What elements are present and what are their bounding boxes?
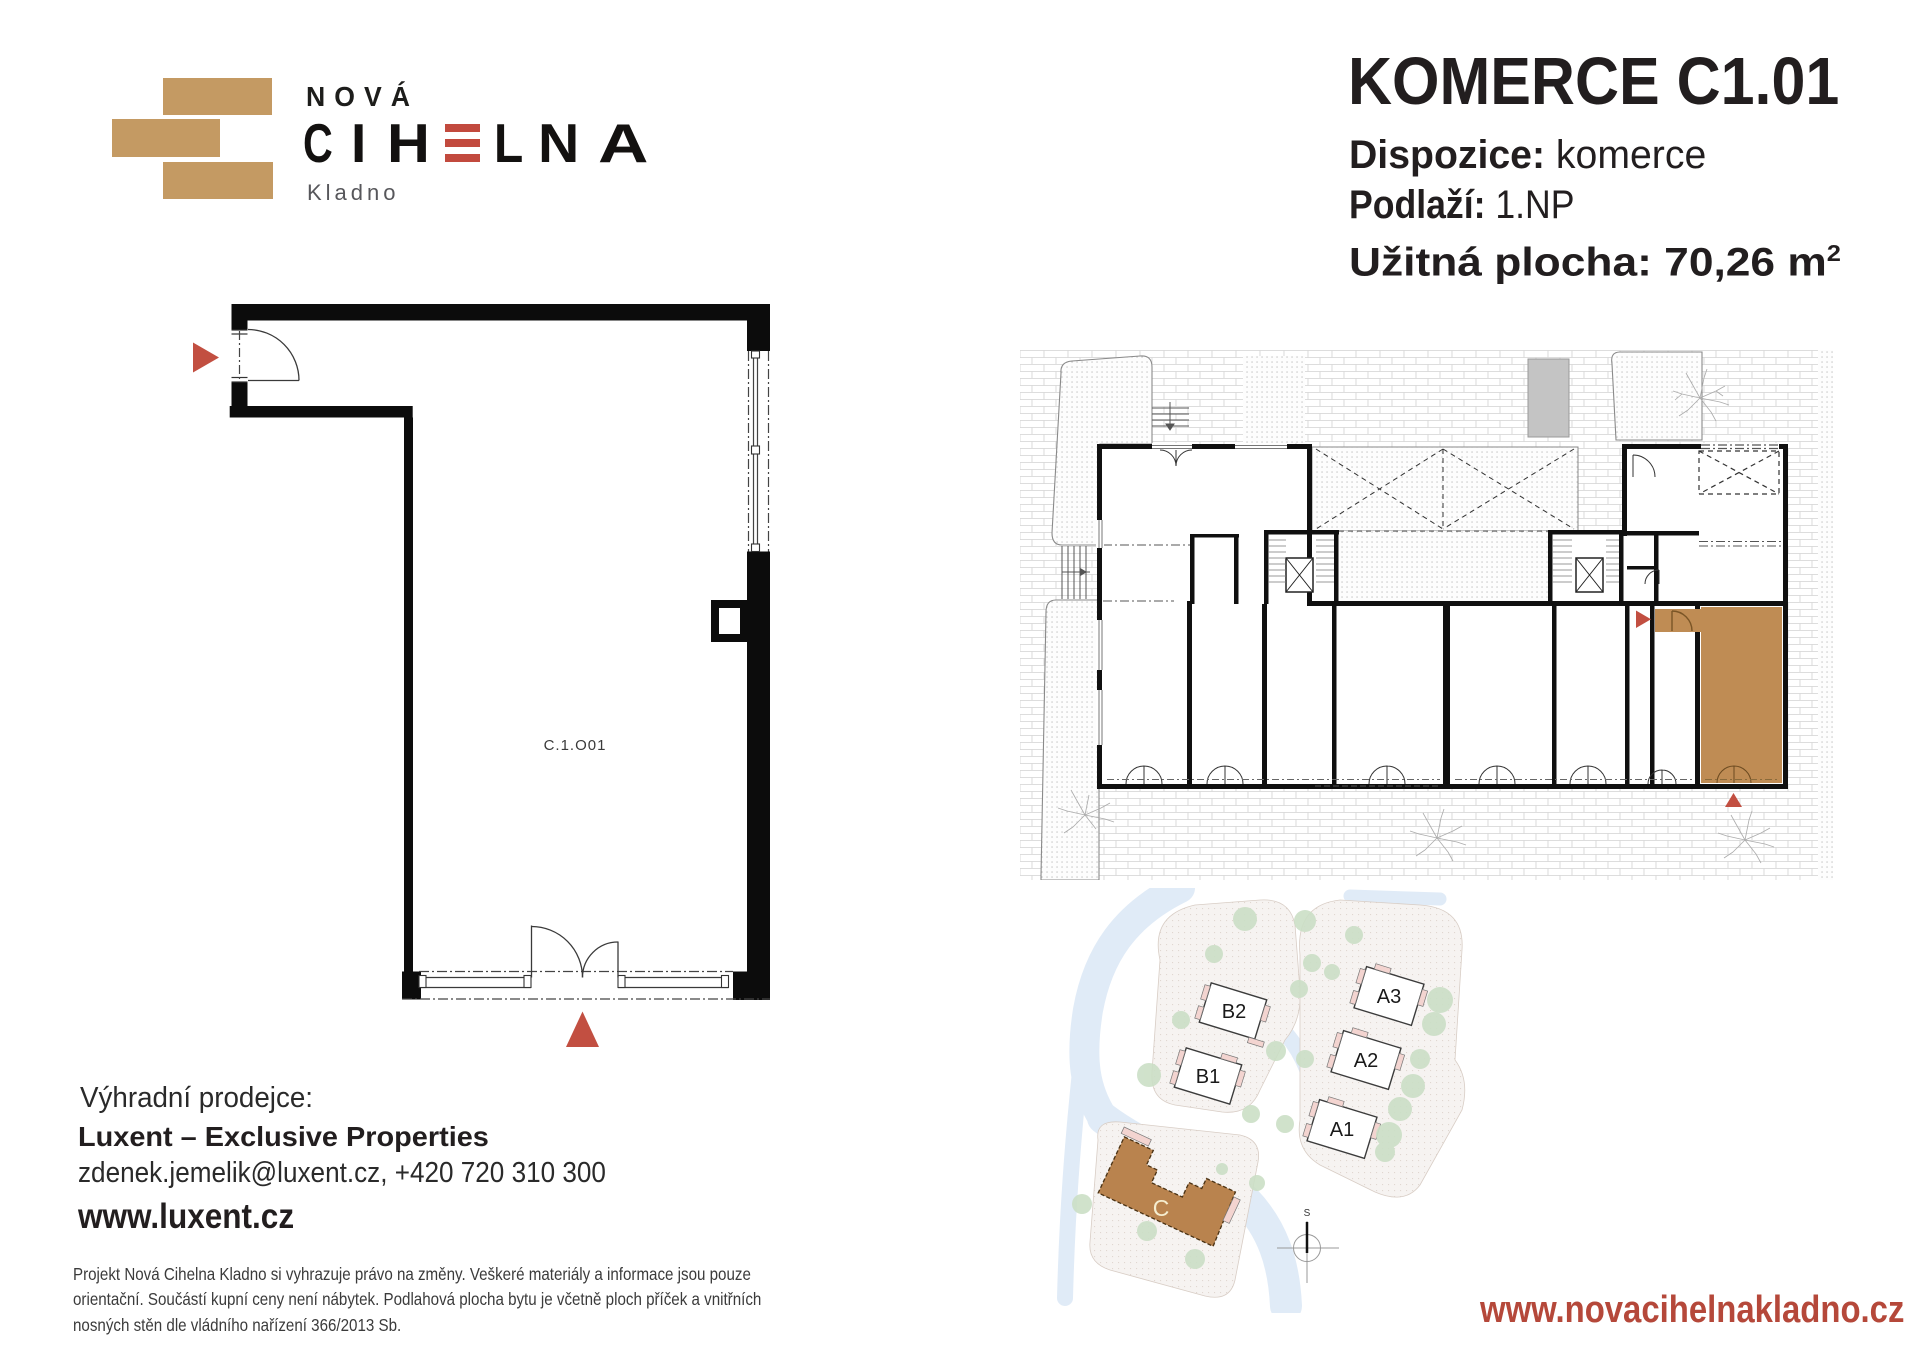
svg-text:A1: A1 bbox=[1330, 1119, 1354, 1141]
svg-text:A2: A2 bbox=[1354, 1050, 1378, 1072]
svg-text:C.1.O01: C.1.O01 bbox=[544, 737, 607, 754]
svg-text:C: C bbox=[1153, 1195, 1170, 1221]
svg-text:S: S bbox=[1304, 1208, 1311, 1219]
svg-text:A3: A3 bbox=[1377, 986, 1401, 1008]
svg-text:B2: B2 bbox=[1222, 1001, 1246, 1023]
svg-text:B1: B1 bbox=[1196, 1066, 1220, 1088]
